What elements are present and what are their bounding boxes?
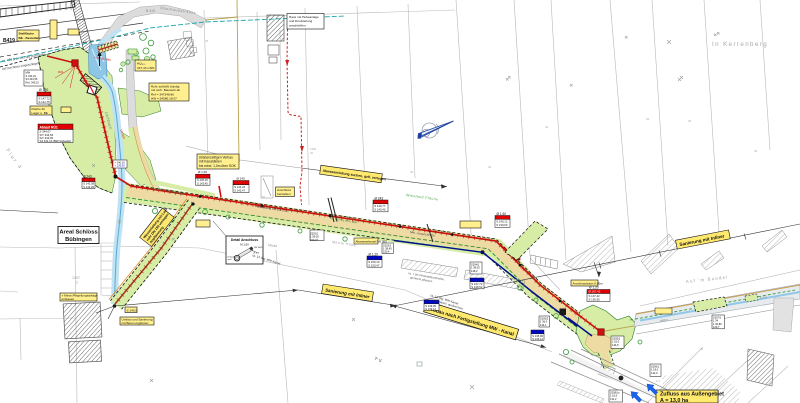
svg-text:45: 45	[688, 119, 692, 123]
svg-text:32: 32	[310, 151, 314, 155]
svg-text:134,9: 134,9	[612, 343, 619, 347]
svg-text:1397: 1397	[72, 276, 80, 280]
svg-text:Ø 240: Ø 240	[237, 177, 246, 181]
svg-text:Anschlussbach 0,90m: Anschlussbach 0,90m	[573, 281, 604, 285]
svg-text:43: 43	[646, 117, 650, 121]
svg-text:129,7: 129,7	[713, 325, 720, 329]
svg-text:S4 341,10 (BW-Vorlaufst): S4 341,10 (BW-Vorlaufst)	[40, 139, 72, 143]
svg-text:S 136,52: S 136,52	[471, 285, 483, 289]
svg-text:S 140,40: S 140,40	[374, 208, 386, 212]
svg-text:Bübingen: Bübingen	[65, 237, 92, 243]
svg-text:153,07: 153,07	[310, 238, 318, 242]
svg-text:einbauen: einbauen	[62, 297, 75, 301]
svg-text:B419: B419	[3, 38, 15, 44]
svg-text:148,2: 148,2	[471, 269, 478, 273]
svg-text:M 1:50: M 1:50	[240, 242, 249, 246]
svg-text:S 143,26: S 143,26	[83, 185, 94, 189]
svg-text:HW = 54580.18 07: HW = 54580.18 07	[151, 96, 177, 100]
svg-text:vorh.: vorh.	[228, 259, 233, 261]
svg-text:2: 2	[76, 281, 78, 285]
svg-text:BE - Bestellen: BE - Bestellen	[19, 36, 40, 40]
svg-text:S 142,47: S 142,47	[234, 188, 245, 192]
svg-text:S 141,75: S 141,75	[39, 100, 51, 104]
svg-text:S 139,60: S 139,60	[496, 223, 508, 227]
svg-text:60: 60	[262, 195, 266, 199]
svg-text:131,2: 131,2	[610, 397, 617, 401]
svg-text:mit Beton ergänzen: mit Beton ergänzen	[122, 321, 149, 325]
svg-text:Ref. 345,10: Ref. 345,10	[26, 80, 40, 84]
svg-text:S 140,5: S 140,5	[127, 308, 138, 312]
svg-text:RÜ1: RÜ1	[58, 70, 64, 74]
svg-text:49: 49	[700, 347, 704, 351]
svg-text:Areal Schloss: Areal Schloss	[59, 230, 97, 236]
svg-text:78: 78	[205, 39, 209, 43]
svg-text:Ablauf RÜ1: Ablauf RÜ1	[40, 124, 58, 129]
svg-text:+ 139,30: + 139,30	[115, 164, 126, 168]
svg-text:347,43 mNN: 347,43 mNN	[137, 66, 154, 70]
svg-text:A = 13,0 ha: A = 13,0 ha	[660, 398, 689, 403]
svg-text:S 136,95: S 136,95	[589, 297, 601, 301]
svg-text:40: 40	[488, 165, 492, 169]
svg-text:S 143,40: S 143,40	[197, 181, 208, 185]
svg-text:anschließen: anschließen	[289, 23, 306, 27]
svg-text:In Kerrenberg: In Kerrenberg	[712, 41, 768, 48]
svg-text:Ø 1,50: Ø 1,50	[198, 170, 207, 174]
svg-text:44: 44	[545, 125, 549, 129]
svg-text:132,0: 132,0	[651, 371, 658, 375]
svg-text:Zufluss aus Außengebiet: Zufluss aus Außengebiet	[660, 392, 724, 398]
svg-text:herstellen: herstellen	[277, 192, 291, 196]
svg-text:Lager u. BE: Lager u. BE	[32, 111, 48, 115]
svg-text:S 139,12: S 139,12	[425, 307, 436, 311]
svg-text:134,1: 134,1	[540, 323, 547, 327]
svg-text:S 150,47: S 150,47	[368, 263, 380, 267]
svg-text:S 135,12: S 135,12	[532, 337, 543, 341]
svg-text:MW: MW	[26, 71, 31, 75]
svg-text:S 144,34: S 144,34	[234, 185, 245, 189]
svg-text:49: 49	[754, 149, 758, 153]
svg-text:49: 49	[410, 170, 414, 174]
svg-text:Ø 150: Ø 150	[39, 88, 48, 92]
svg-text:B 419: B 419	[146, 9, 155, 13]
svg-text:150,4: 150,4	[383, 250, 390, 254]
svg-text:bis mind. 1,0m über SOK: bis mind. 1,0m über SOK	[199, 164, 237, 168]
svg-text:DN 150/1: DN 150/1	[254, 247, 263, 249]
svg-text:1,3: 1,3	[656, 379, 660, 383]
svg-text:mit vorh. Bauwerk ab: mit vorh. Bauwerk ab	[151, 88, 180, 92]
